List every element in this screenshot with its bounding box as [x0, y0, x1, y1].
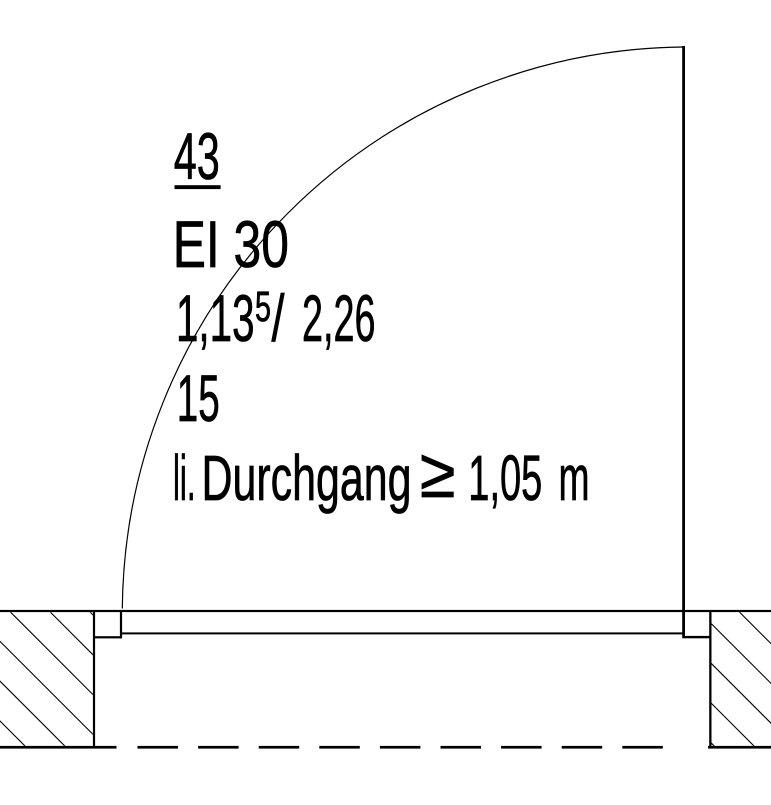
svg-text:≥: ≥ [420, 434, 456, 512]
svg-text:m: m [559, 442, 590, 514]
svg-text:/: / [272, 281, 285, 355]
svg-text:li.: li. [173, 442, 196, 514]
svg-text:5: 5 [255, 283, 271, 331]
svg-text:15: 15 [177, 361, 220, 435]
svg-text:Durchgang: Durchgang [202, 442, 412, 514]
svg-text:1,13: 1,13 [176, 281, 255, 355]
svg-text:EI 30: EI 30 [173, 207, 289, 281]
svg-text:43: 43 [174, 119, 220, 193]
svg-text:1,05: 1,05 [468, 442, 542, 514]
svg-text:2,26: 2,26 [302, 281, 376, 355]
